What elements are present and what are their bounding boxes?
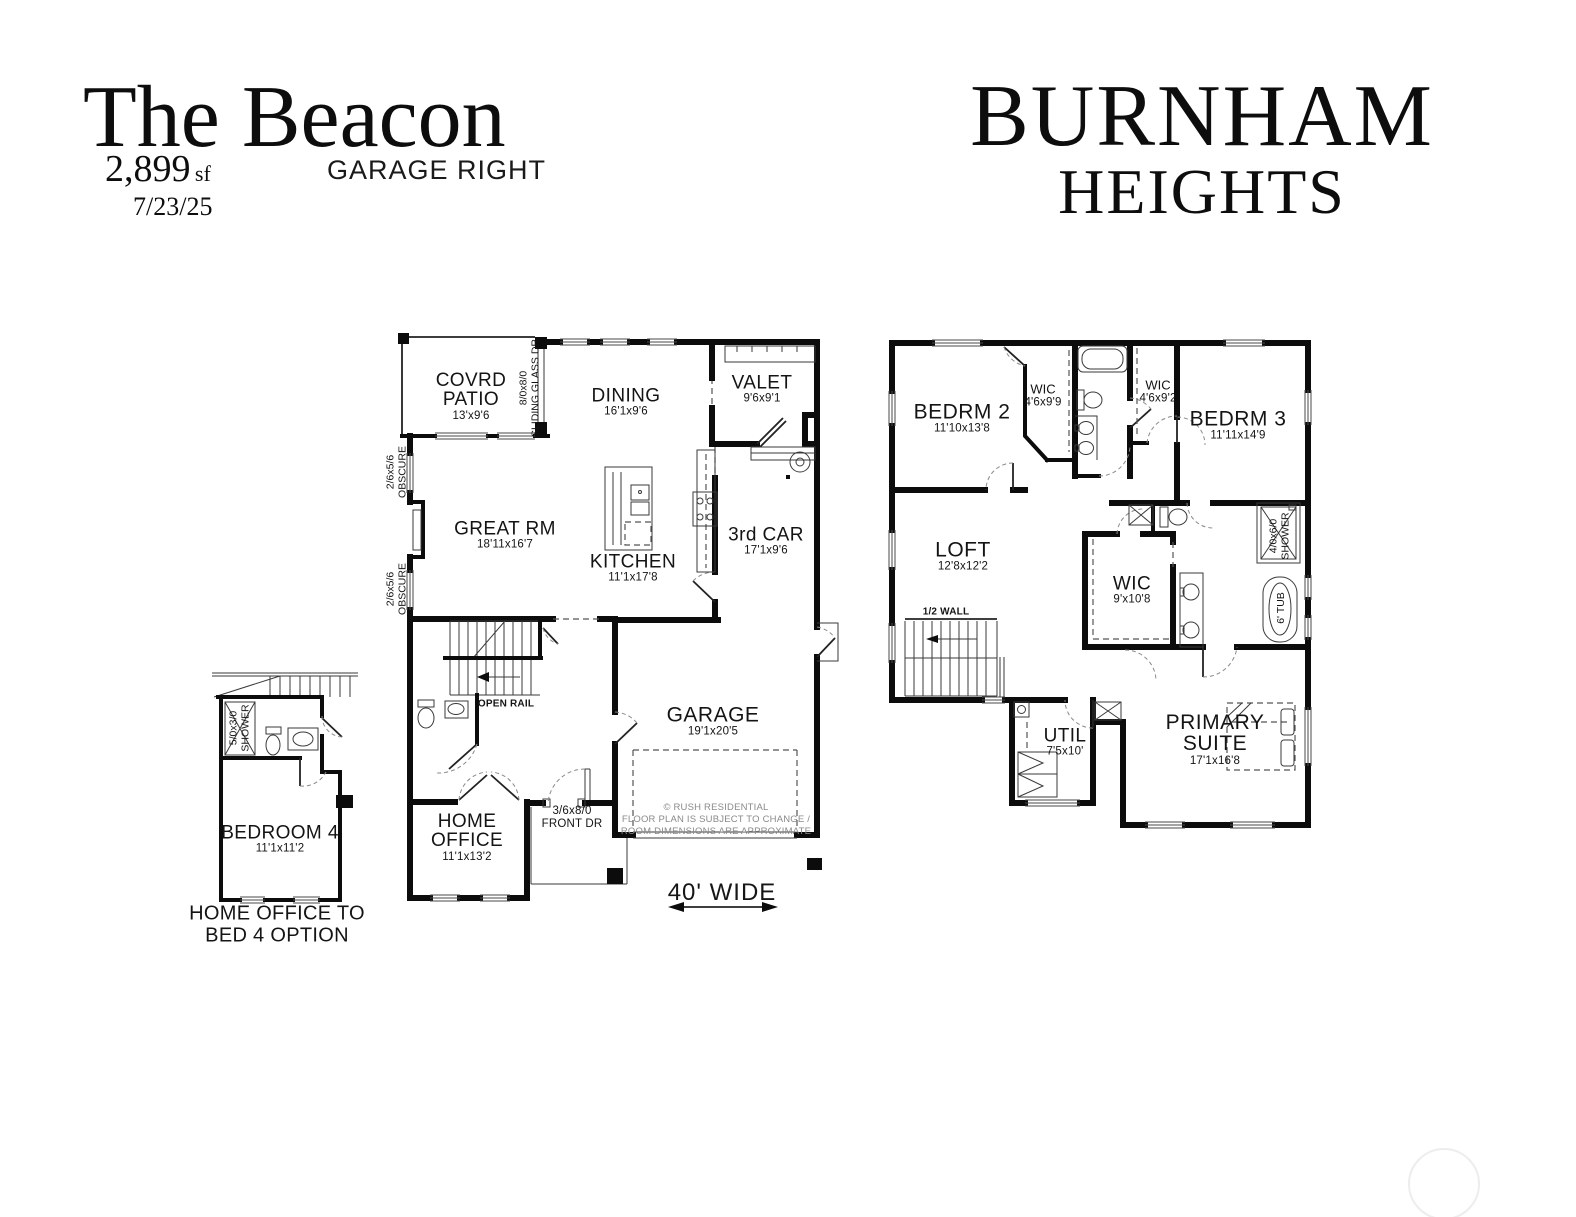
community-line1: BURNHAM [942, 74, 1462, 160]
room-3rd-car: 3rd CAR 17'1x9'6 [728, 526, 804, 559]
obscure-window-label-2: 2/6x5/6 OBSCURE [385, 563, 409, 615]
garage-fixtures [633, 452, 810, 830]
community-title: BURNHAM HEIGHTS [942, 74, 1462, 224]
primary-tub-label: 6' TUB [1276, 592, 1288, 624]
sliding-glass-door-label: 8/0x8/0 SLIDING GLASS DR [518, 339, 542, 437]
option-stairs [212, 673, 358, 697]
obscure-window-label-1: 2/6x5/6 OBSCURE [385, 446, 409, 498]
stairs [445, 621, 558, 695]
room-util: UTIL 7'5x10' [1044, 727, 1087, 760]
room-wic-bedrm3: WIC 4'6x9'2 [1139, 379, 1176, 406]
community-line2: HEIGHTS [942, 160, 1462, 224]
room-covrd-patio: COVRD PATIO 13'x9'6 [436, 371, 507, 423]
option-caption: HOME OFFICE TO BED 4 OPTION [189, 903, 365, 948]
option-shower-label: 5/0x3/0 SHOWER [228, 704, 252, 751]
room-wic-bedrm2: WIC 4'6x9'9 [1024, 383, 1061, 410]
room-dining: DINING 16'1x9'6 [592, 387, 661, 420]
powder-room [418, 695, 477, 773]
front-door-label: 3/6x8/0 FRONT DR [542, 805, 603, 831]
area-unit-text: sf [195, 161, 211, 186]
watermark-circle [1408, 1148, 1480, 1217]
room-garage: GARAGE 19'1x20'5 [667, 705, 760, 740]
primary-shower-label: 4/0x6/0 SHOWER [1268, 512, 1292, 559]
room-valet: VALET 9'6x9'1 [732, 374, 793, 407]
open-rail-label: OPEN RAIL [478, 699, 534, 710]
room-bedrm-3: BEDRM 3 11'11x14'9 [1190, 409, 1287, 444]
area-value: 2,899 [105, 148, 191, 190]
room-home-office: HOME OFFICE 11'1x13'2 [431, 812, 503, 864]
garage-variant-label: GARAGE RIGHT [327, 155, 546, 186]
room-kitchen: KITCHEN 11'1x17'8 [590, 553, 676, 586]
room-bedrm-2: BEDRM 2 11'10x13'8 [914, 402, 1011, 437]
square-footage: 2,899 sf [105, 147, 211, 191]
floor-plan-sheet: The Beacon 2,899 sf 7/23/25 GARAGE RIGHT… [0, 0, 1576, 1217]
room-bedroom-4: BEDROOM 4 11'1x11'2 [221, 824, 339, 857]
plan-date: 7/23/25 [133, 192, 212, 222]
bed4-option-plan [200, 660, 375, 912]
room-wic-primary: WIC 9'x10'8 [1113, 575, 1151, 608]
copyright-disclaimer: © RUSH RESIDENTIAL FLOOR PLAN IS SUBJECT… [621, 802, 811, 838]
stairs-2f [905, 619, 1004, 697]
half-wall-label: 1/2 WALL [923, 607, 970, 618]
hall-bath-fixtures-2f [1075, 346, 1127, 460]
room-great-rm: GREAT RM 18'11x16'7 [454, 520, 556, 553]
room-loft: LOFT 12'8x12'2 [935, 540, 991, 575]
room-primary-suite: PRIMARY SUITE 17'1x16'8 [1166, 712, 1265, 768]
width-dimension-label: 40' WIDE [668, 879, 777, 907]
